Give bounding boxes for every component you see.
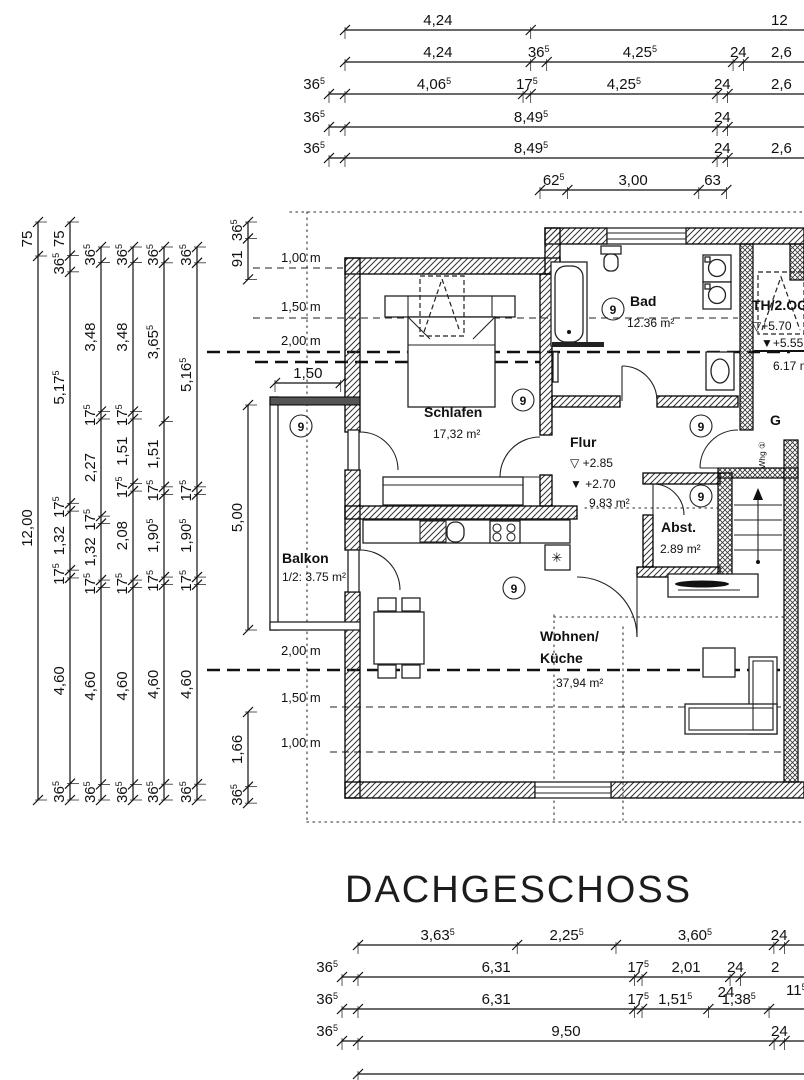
dim-label: 12 (771, 12, 788, 29)
dim-label: 175 (145, 480, 162, 502)
dim-label: 6,31 (482, 991, 511, 1008)
room-area-balkon: 1/2: 3.75 m² (282, 570, 346, 584)
wall-segment (657, 396, 738, 407)
stove (490, 521, 520, 543)
dim-label: 365 (51, 253, 68, 275)
window-bad (607, 228, 686, 244)
dim-label: 5,165 (178, 358, 195, 392)
room-name-th: TH/2.OG (752, 297, 804, 313)
dim-label: 365 (303, 140, 325, 157)
bathtub (551, 262, 604, 347)
dim-label: 4,24 (423, 12, 452, 29)
wall-segment (540, 274, 552, 435)
dim-label: 91 (229, 251, 246, 268)
zone-marker: 9 (690, 485, 712, 507)
room-name-bad: Bad (630, 293, 656, 309)
door-balkon-wohnen (348, 550, 400, 592)
dim-label: 175 (82, 573, 99, 595)
dim-label: 365 (229, 219, 246, 241)
dim-label: 24 (730, 44, 747, 61)
door-bad (622, 366, 657, 401)
dim-label: 75 (51, 230, 68, 247)
dim-label: 3,655 (145, 325, 162, 359)
height-label: 1,50 m (281, 690, 321, 705)
toilet-2 (706, 352, 734, 390)
dim-label: 365 (316, 959, 338, 976)
dim-label: 63 (704, 172, 721, 189)
dim-label: 2,255 (549, 927, 583, 944)
bed (385, 296, 515, 407)
height-label: 2,00 m (281, 333, 321, 348)
room-name-wohnen-2: Küche (540, 650, 583, 666)
chair (402, 665, 420, 678)
dim-label: 24 (714, 140, 731, 157)
dim-label: 175 (178, 570, 195, 592)
dim-label: 365 (145, 781, 162, 803)
dim-label: 5,175 (51, 370, 68, 404)
dim-label: 4,60 (145, 670, 162, 699)
dim-label: 8,495 (514, 109, 548, 126)
dim-label: 24 (771, 1023, 788, 1040)
height-label: 2,00 m (281, 643, 321, 658)
dim-label: 4,60 (114, 671, 131, 700)
room-name-balkon: Balkon (282, 550, 329, 566)
height-label: 1,00 m (281, 735, 321, 750)
room-name-schlafen: Schlafen (424, 404, 482, 420)
wardrobe (383, 477, 523, 505)
sideboard (668, 574, 758, 597)
toilet (601, 246, 621, 271)
room-area-flur: 9.83 m² (589, 496, 630, 510)
dim-label: 4,60 (51, 666, 68, 695)
washing-machines (703, 255, 731, 309)
dim-label: 4,60 (178, 670, 195, 699)
dim-label: 4,60 (82, 671, 99, 700)
schlafen-furniture (383, 276, 523, 505)
wall-segment (686, 228, 804, 244)
dim-label: 175 (51, 563, 68, 585)
wall-segment (345, 258, 560, 274)
dim-label: 24 (718, 984, 735, 1001)
dim-label: 1,515 (658, 991, 692, 1008)
dim-label: 365 (82, 781, 99, 803)
th-level-lower: ▼+5.55 (761, 336, 804, 350)
dim-label: 1,32 (51, 526, 68, 555)
dim-label: 3,48 (114, 322, 131, 351)
dim-label: 1,51 (145, 440, 162, 469)
room-area-th: 6.17 m² (773, 359, 804, 373)
room-name-abst: Abst. (661, 519, 696, 535)
dim-label: 115 (786, 982, 804, 999)
dim-label: 365 (303, 76, 325, 93)
wall-segment (784, 440, 798, 782)
dim-label: 365 (178, 781, 195, 803)
page-title: DACHGESCHOSS (345, 869, 692, 911)
svg-text:9: 9 (298, 420, 305, 434)
flur-level-lower: ▼ +2.70 (570, 477, 616, 491)
th-level-upper: ▽+5.70 (752, 319, 792, 333)
dim-label: 3,635 (420, 927, 454, 944)
height-label: 1,50 m (281, 299, 321, 314)
dim-label: 24 (714, 76, 731, 93)
dim-label: 3,605 (678, 927, 712, 944)
door-abstellraum (653, 484, 684, 515)
dim-label: 175 (51, 496, 68, 518)
zone-marker: 9 (290, 415, 312, 437)
dim-label: 175 (145, 570, 162, 592)
dim-label: 1,66 (229, 735, 246, 764)
dim-label: 5,00 (229, 503, 246, 532)
flur-level-upper: ▽ +2.85 (570, 456, 613, 470)
dim-label: 175 (114, 476, 131, 498)
floorplan-page: ✳ (0, 0, 804, 1080)
dim-label: 4,065 (417, 76, 451, 93)
dim-label: 365 (316, 991, 338, 1008)
dim-label: 24 (727, 959, 744, 976)
wall-segment (345, 782, 535, 798)
height-line-labels: 1,00 m 1,50 m 2,00 m 2,00 m 1,50 m 1,00 … (281, 250, 321, 750)
dim-label: 365 (145, 244, 162, 266)
dim-label: 12,00 (19, 509, 36, 547)
dim-label: 75 (19, 231, 36, 248)
dim-label: 2,6 (771, 44, 792, 61)
dim-label: 24 (771, 927, 788, 944)
wall-segment (540, 475, 552, 506)
room-area-abst: 2.89 m² (660, 542, 701, 556)
window-wohnen (535, 782, 611, 798)
flue-symbol: ✳ (552, 550, 563, 565)
wall-segment (552, 396, 620, 407)
dim-label: 3,00 (618, 172, 647, 189)
zone-marker: 9 (690, 415, 712, 437)
chair (378, 665, 396, 678)
dim-label: 365 (316, 1023, 338, 1040)
dim-label: 175 (114, 404, 131, 426)
wall-segment (611, 782, 804, 798)
dining-set (374, 598, 424, 678)
dim-label: 6,31 (482, 959, 511, 976)
svg-text:9: 9 (610, 303, 617, 317)
room-area-bad: 12.36 m² (627, 316, 674, 330)
height-label: 1,00 m (281, 250, 321, 265)
coffee-table (703, 648, 735, 677)
dim-label: 4,255 (607, 76, 641, 93)
svg-text:9: 9 (520, 394, 527, 408)
sink-basin (447, 522, 464, 542)
wall-segment (643, 473, 720, 484)
dim-label: 1,50 (293, 365, 322, 382)
dim-label: 175 (114, 573, 131, 595)
dim-label: 4,24 (423, 44, 452, 61)
room-name-flur: Flur (570, 434, 597, 450)
chair (402, 598, 420, 611)
door-schlafen (500, 437, 540, 477)
wall-segment (790, 244, 804, 280)
dim-label: 1,905 (145, 519, 162, 553)
sink-unit (420, 521, 446, 542)
dining-table (374, 612, 424, 664)
dim-label: 365 (178, 244, 195, 266)
whg-label: Whg ① (757, 441, 767, 468)
dim-label: 365 (528, 44, 550, 61)
zone-marker: 9 (602, 298, 624, 320)
svg-text:9: 9 (511, 582, 518, 596)
dim-label: 24 (714, 109, 731, 126)
dim-label: 9,50 (551, 1023, 580, 1040)
dim-label: 175 (82, 404, 99, 426)
dim-label: 175 (82, 509, 99, 531)
room-area-schlafen: 17,32 m² (433, 427, 480, 441)
dim-label: 365 (229, 784, 246, 806)
kitchen: ✳ (363, 520, 570, 570)
dim-label: 175 (178, 480, 195, 502)
wall-segment (740, 244, 753, 430)
dim-label: 1,51 (114, 437, 131, 466)
kitchen-counter (363, 520, 570, 543)
dim-label: 365 (82, 244, 99, 266)
dim-label: 2,01 (671, 959, 700, 976)
dim-label: 8,495 (514, 140, 548, 157)
svg-text:9: 9 (698, 420, 705, 434)
wall-segment (345, 506, 577, 519)
wall-segment (718, 473, 732, 577)
wohnen-furniture (668, 574, 777, 734)
floorplan-drawing: ✳ (0, 0, 804, 1080)
dim-label: 365 (51, 781, 68, 803)
dim-label: 3,48 (82, 322, 99, 351)
door-balkon-schlafen (348, 430, 398, 470)
zone-marker: 9 (503, 577, 525, 599)
dim-label: 365 (303, 109, 325, 126)
dim-label: 1,905 (178, 519, 195, 553)
stairwell (734, 488, 782, 564)
svg-text:9: 9 (698, 490, 705, 504)
dim-label: 4,255 (623, 44, 657, 61)
zone-marker: 9 (512, 389, 534, 411)
g-label: G (770, 412, 781, 428)
dim-label: 2,27 (82, 453, 99, 482)
dim-label: 2,6 (771, 140, 792, 157)
chair (378, 598, 396, 611)
dim-label: 625 (543, 172, 565, 189)
room-name-wohnen-1: Wohnen/ (540, 628, 599, 644)
stair-arrow (753, 488, 763, 500)
dim-label: 1,32 (82, 537, 99, 566)
dim-label: 365 (114, 781, 131, 803)
dim-label: 365 (114, 244, 131, 266)
wall-segment (345, 258, 360, 432)
dim-label: 2 (771, 959, 779, 976)
radiator (553, 352, 558, 382)
dim-label: 2,6 (771, 76, 792, 93)
dim-label: 2,08 (114, 521, 131, 550)
room-area-wohnen: 37,94 m² (556, 676, 603, 690)
wall-segment (643, 515, 653, 567)
